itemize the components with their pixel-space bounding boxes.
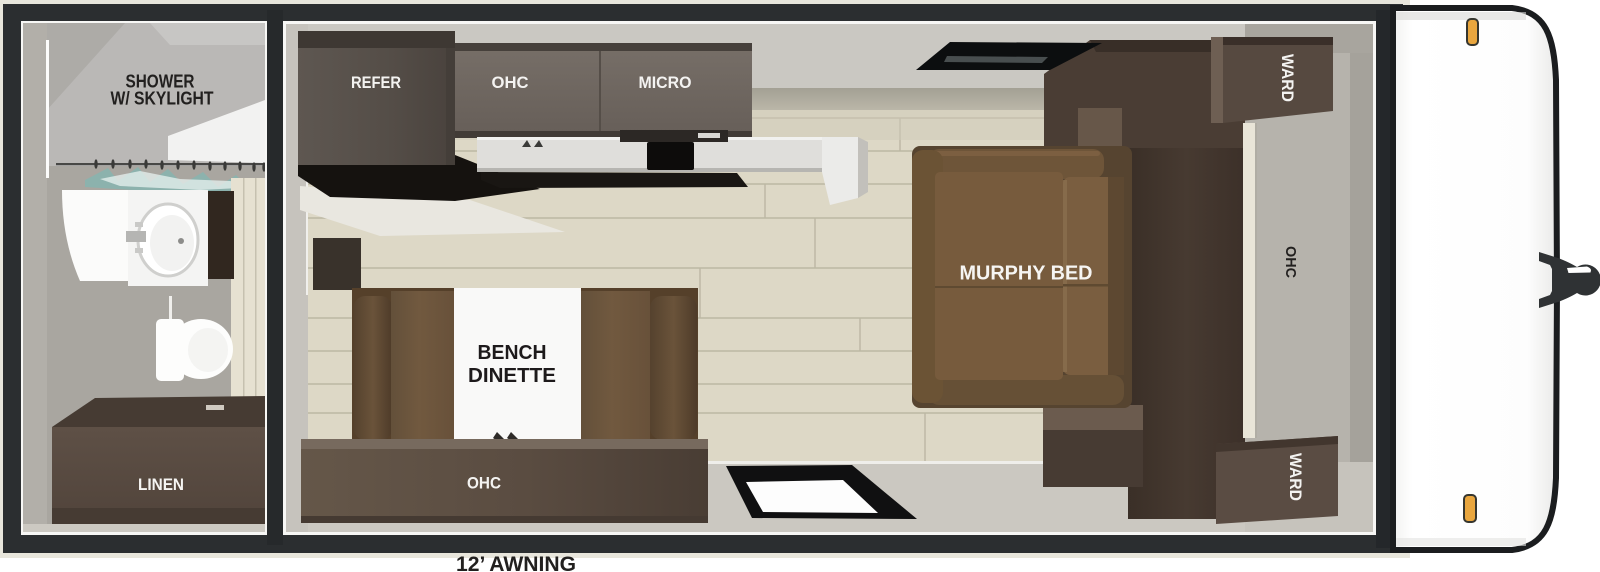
svg-text:LINEN: LINEN bbox=[138, 475, 184, 494]
svg-text:MICRO: MICRO bbox=[639, 73, 692, 92]
svg-text:WARD: WARD bbox=[1286, 453, 1305, 501]
svg-text:MURPHY BED: MURPHY BED bbox=[960, 263, 1093, 285]
svg-text:W/ SKYLIGHT: W/ SKYLIGHT bbox=[111, 89, 214, 109]
svg-text:OHC: OHC bbox=[1282, 246, 1299, 278]
svg-text:WARD: WARD bbox=[1278, 54, 1297, 102]
svg-text:BENCH: BENCH bbox=[478, 342, 547, 364]
svg-text:OHC: OHC bbox=[492, 73, 529, 92]
svg-text:DINETTE: DINETTE bbox=[468, 365, 556, 387]
svg-text:OHC: OHC bbox=[467, 475, 501, 493]
svg-text:12’ AWNING: 12’ AWNING bbox=[456, 553, 576, 572]
svg-text:REFER: REFER bbox=[351, 73, 401, 92]
